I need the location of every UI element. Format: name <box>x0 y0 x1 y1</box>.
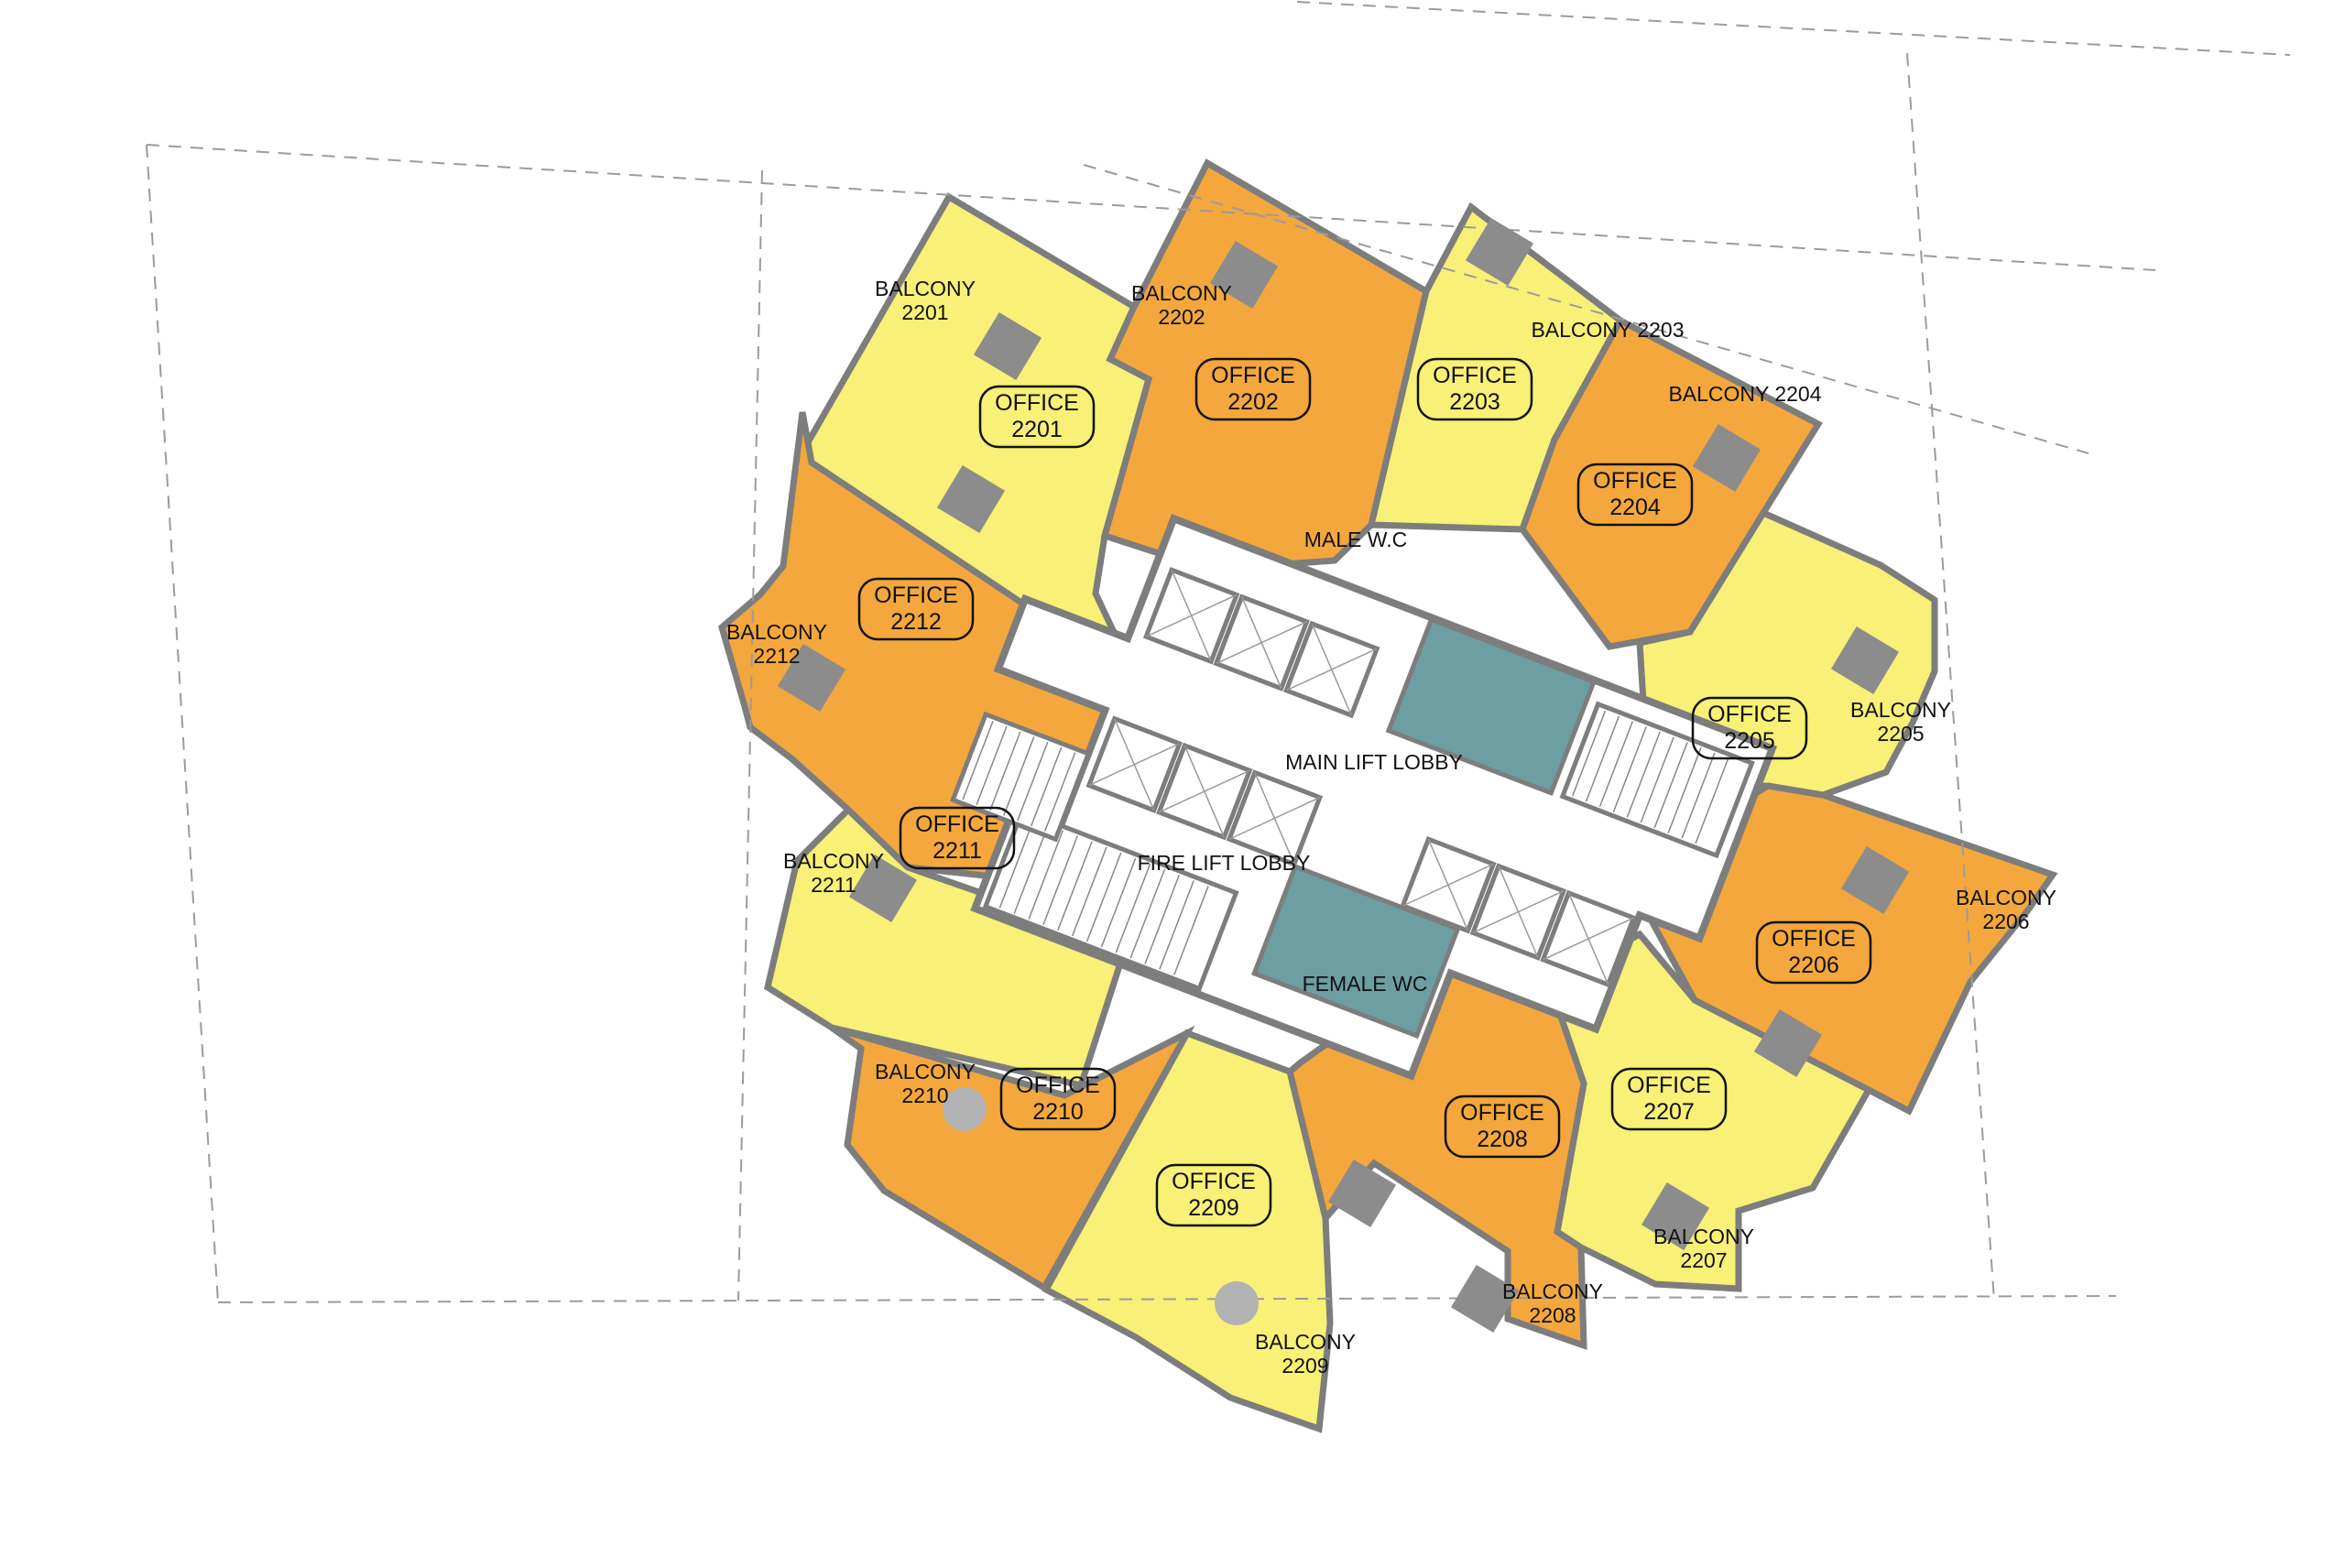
svg-text:BALCONY: BALCONY <box>1255 1330 1356 1354</box>
svg-text:BALCONY 2204: BALCONY 2204 <box>1668 382 1821 406</box>
svg-text:OFFICE: OFFICE <box>1593 468 1677 494</box>
svg-text:2210: 2210 <box>1032 1099 1084 1125</box>
svg-text:MAIN LIFT LOBBY: MAIN LIFT LOBBY <box>1285 750 1463 774</box>
svg-text:2210: 2210 <box>901 1083 948 1107</box>
svg-text:2209: 2209 <box>1282 1354 1328 1377</box>
svg-text:2207: 2207 <box>1680 1248 1727 1272</box>
svg-text:OFFICE: OFFICE <box>915 811 999 837</box>
svg-text:2211: 2211 <box>933 838 982 864</box>
svg-text:OFFICE: OFFICE <box>1211 363 1295 388</box>
svg-text:OFFICE: OFFICE <box>1707 702 1792 727</box>
svg-text:2207: 2207 <box>1643 1099 1695 1125</box>
svg-text:OFFICE: OFFICE <box>1016 1073 1100 1098</box>
svg-text:BALCONY: BALCONY <box>1850 698 1951 722</box>
svg-text:2204: 2204 <box>1609 495 1661 520</box>
svg-text:BALCONY: BALCONY <box>1502 1279 1603 1303</box>
svg-text:MALE W.C: MALE W.C <box>1304 528 1407 551</box>
svg-text:FIRE LIFT LOBBY: FIRE LIFT LOBBY <box>1138 851 1311 875</box>
svg-text:BALCONY: BALCONY <box>726 620 827 644</box>
svg-text:FEMALE WC: FEMALE WC <box>1303 972 1428 996</box>
svg-text:OFFICE: OFFICE <box>1627 1073 1711 1098</box>
svg-text:2211: 2211 <box>811 873 856 897</box>
svg-text:OFFICE: OFFICE <box>1433 363 1517 388</box>
svg-text:BALCONY: BALCONY <box>1653 1225 1754 1248</box>
svg-text:BALCONY: BALCONY <box>875 277 976 300</box>
svg-text:2205: 2205 <box>1724 728 1775 754</box>
svg-text:OFFICE: OFFICE <box>874 583 958 608</box>
svg-text:OFFICE: OFFICE <box>1460 1100 1544 1126</box>
svg-text:2201: 2201 <box>1011 417 1063 442</box>
svg-text:2208: 2208 <box>1477 1127 1528 1152</box>
svg-text:2206: 2206 <box>1982 909 2029 933</box>
svg-text:2201: 2201 <box>901 300 948 324</box>
svg-text:2206: 2206 <box>1788 953 1839 978</box>
svg-text:2212: 2212 <box>753 644 800 668</box>
svg-text:BALCONY: BALCONY <box>1131 281 1232 305</box>
svg-text:OFFICE: OFFICE <box>995 390 1079 416</box>
svg-text:2203: 2203 <box>1449 389 1500 415</box>
svg-text:2202: 2202 <box>1158 305 1205 329</box>
svg-text:2202: 2202 <box>1227 389 1279 415</box>
svg-text:BALCONY: BALCONY <box>783 849 884 873</box>
svg-text:OFFICE: OFFICE <box>1772 926 1856 952</box>
svg-text:OFFICE: OFFICE <box>1172 1169 1256 1194</box>
svg-text:BALCONY: BALCONY <box>875 1060 976 1083</box>
svg-text:2208: 2208 <box>1529 1303 1576 1327</box>
svg-text:2209: 2209 <box>1188 1195 1239 1221</box>
svg-text:2212: 2212 <box>890 609 942 635</box>
svg-text:BALCONY 2203: BALCONY 2203 <box>1531 318 1684 342</box>
svg-text:2205: 2205 <box>1877 722 1924 746</box>
svg-text:BALCONY: BALCONY <box>1956 886 2056 909</box>
